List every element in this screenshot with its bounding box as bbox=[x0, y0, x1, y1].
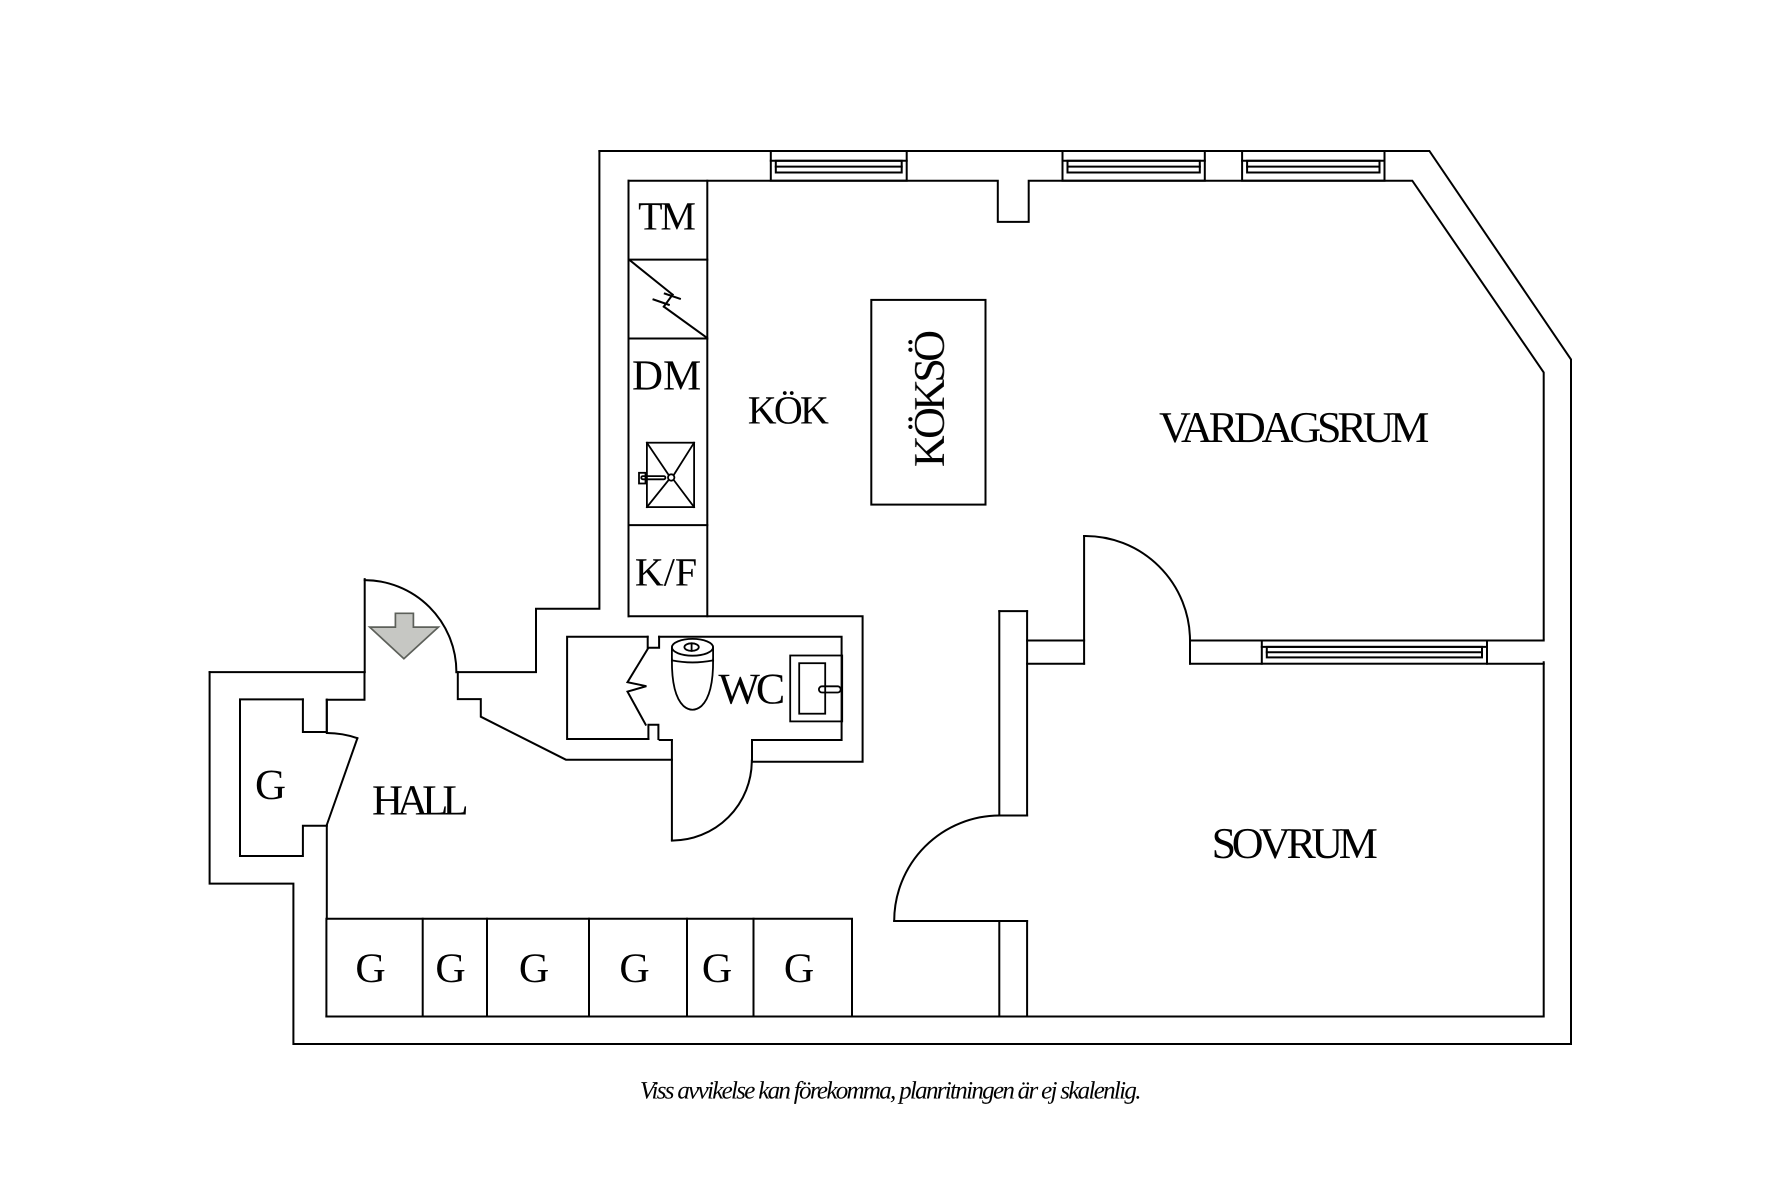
svg-text:G: G bbox=[519, 946, 549, 992]
svg-text:G: G bbox=[784, 946, 814, 992]
svg-text:G: G bbox=[619, 946, 649, 992]
svg-text:G: G bbox=[435, 946, 465, 992]
svg-text:G: G bbox=[255, 762, 286, 809]
svg-text:TM: TM bbox=[638, 193, 695, 238]
svg-text:WC: WC bbox=[718, 664, 783, 713]
svg-text:Viss avvikelse kan förekomma,: Viss avvikelse kan förekomma, planritnin… bbox=[640, 1078, 1140, 1105]
svg-text:G: G bbox=[702, 946, 732, 992]
svg-text:HALL: HALL bbox=[372, 777, 466, 824]
svg-text:K/F: K/F bbox=[635, 550, 697, 595]
svg-text:VARDAGSRUM: VARDAGSRUM bbox=[1159, 403, 1428, 452]
svg-text:G: G bbox=[355, 946, 385, 992]
svg-text:DM: DM bbox=[632, 353, 701, 400]
svg-text:KÖKSÖ: KÖKSÖ bbox=[905, 332, 954, 467]
svg-text:KÖK: KÖK bbox=[748, 387, 829, 432]
svg-text:SOVRUM: SOVRUM bbox=[1212, 819, 1377, 868]
